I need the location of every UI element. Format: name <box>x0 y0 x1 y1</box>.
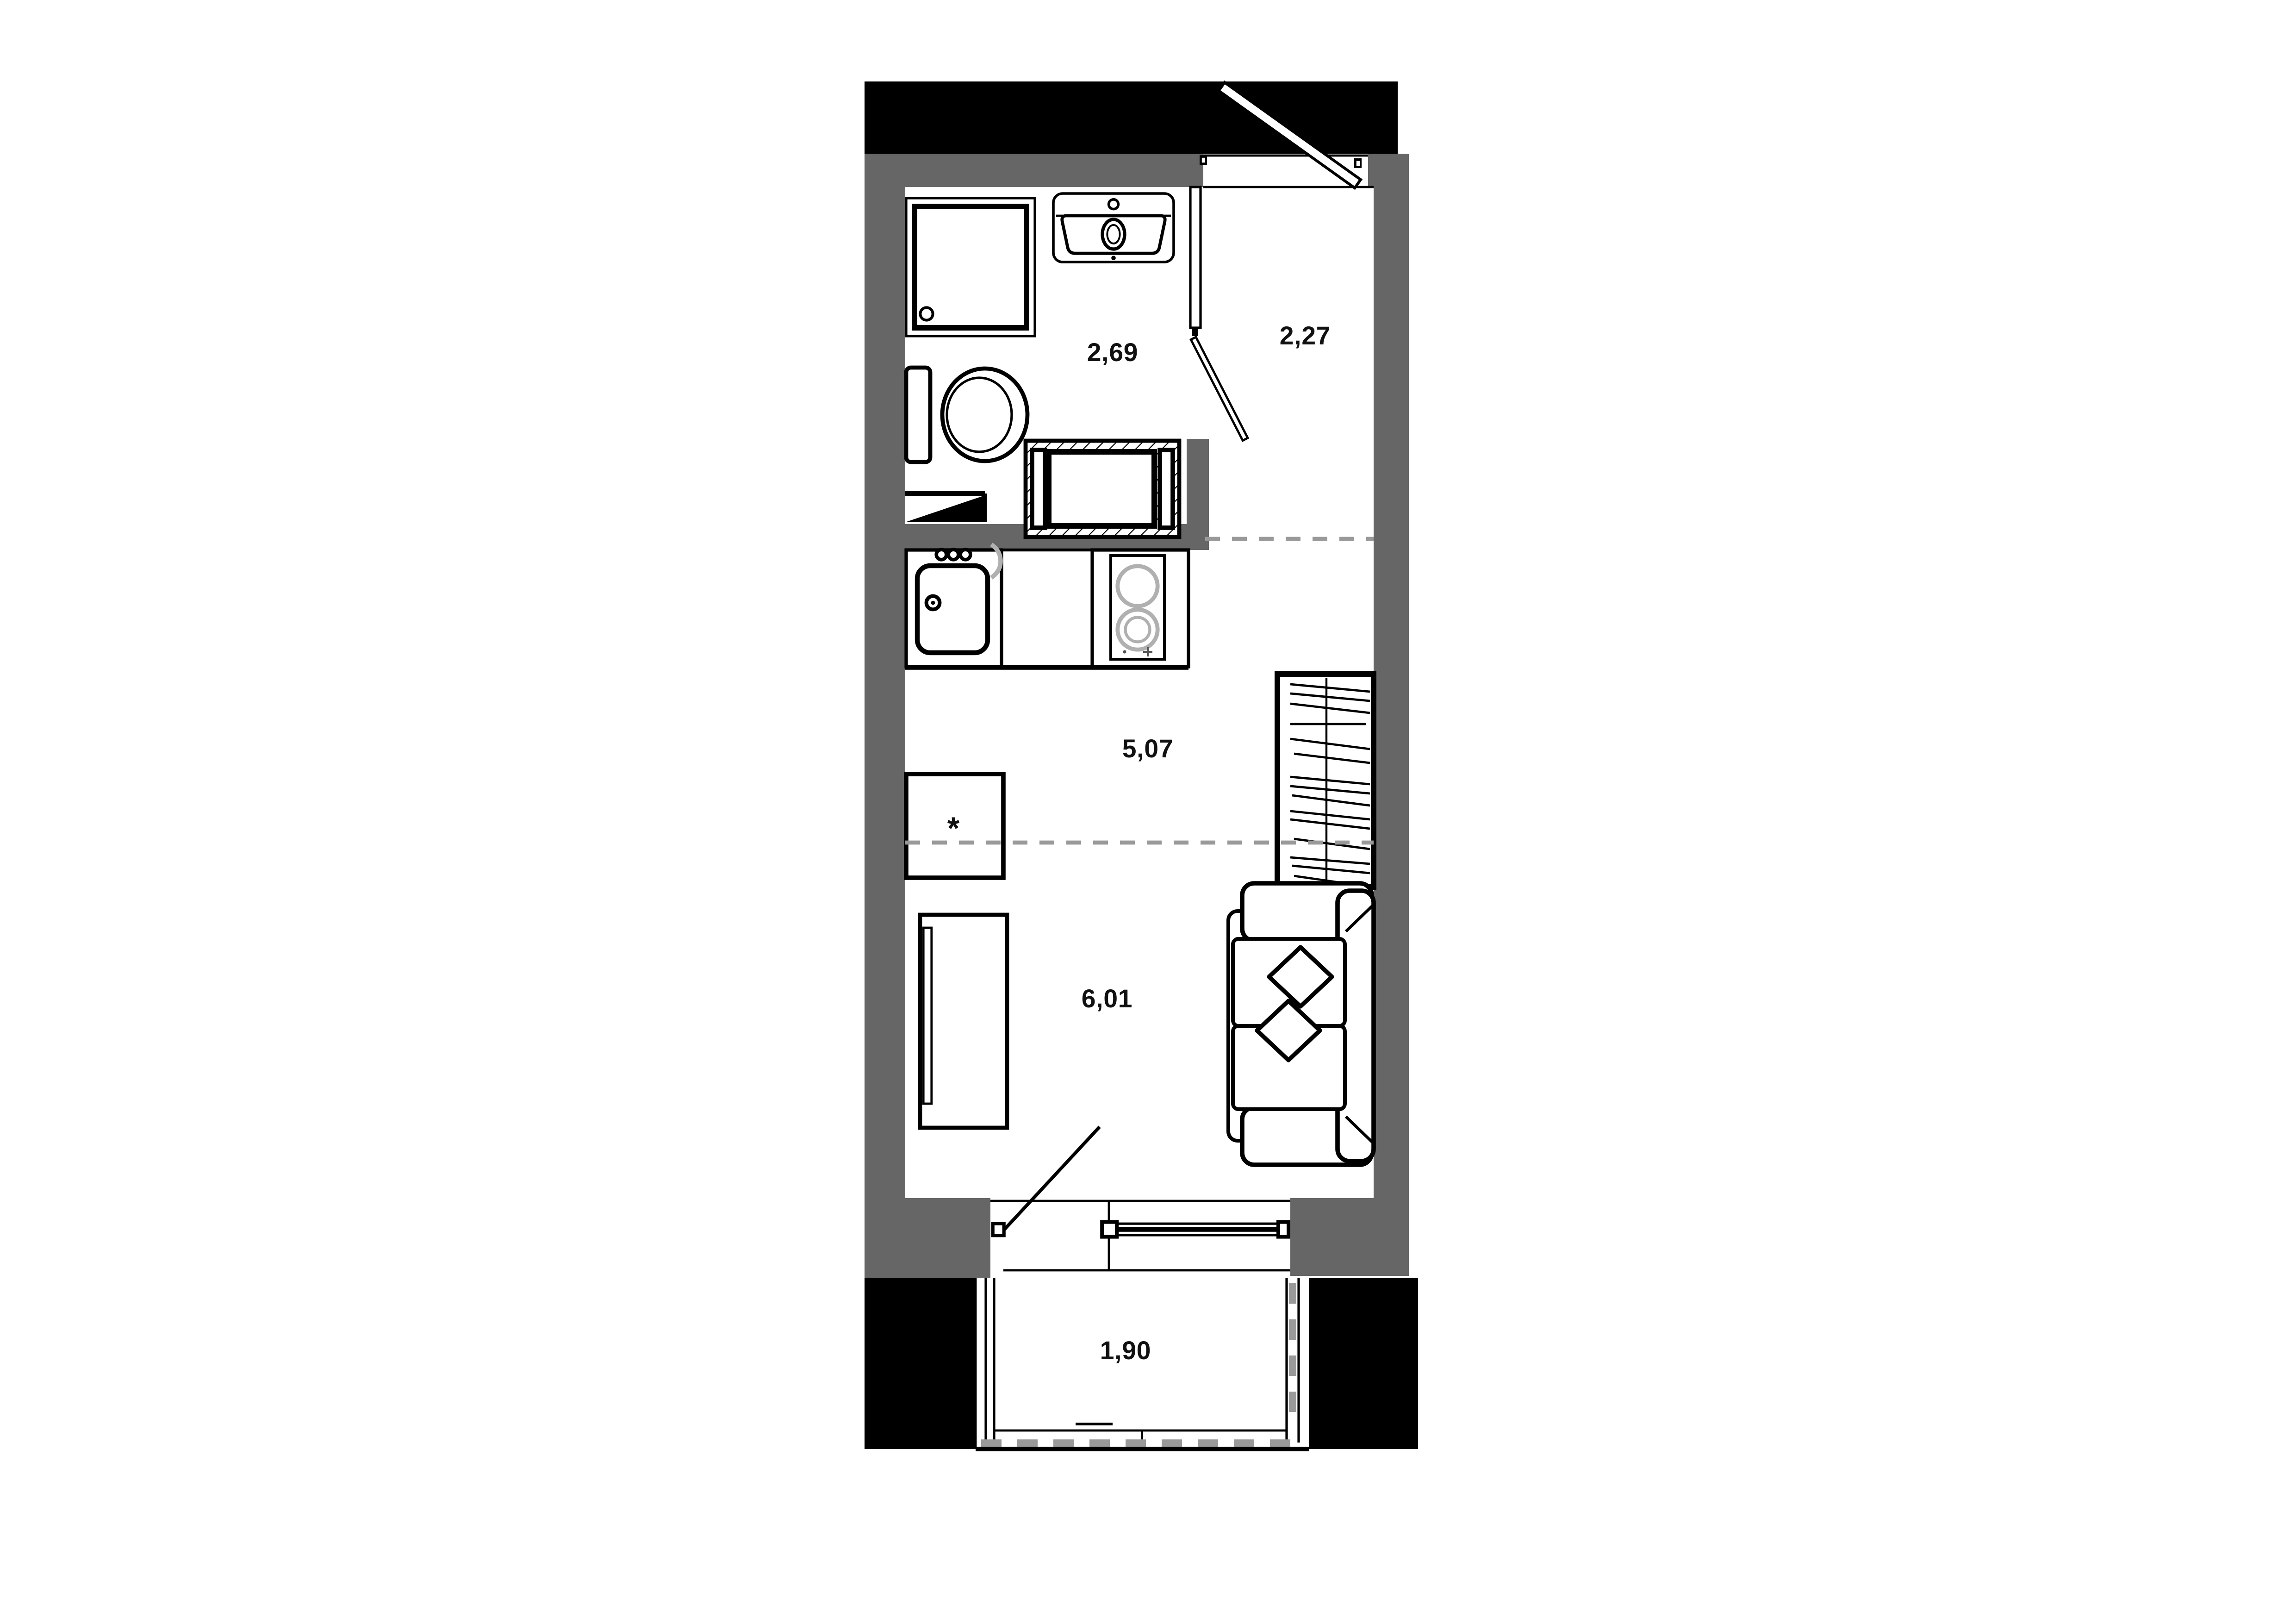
shower-cabin <box>906 198 1035 336</box>
washing-machine <box>1026 441 1179 537</box>
label-balcony-area: 1,90 <box>1100 1336 1151 1365</box>
desk-top <box>920 915 1007 1128</box>
kitchen-sink-drain-dot <box>931 601 935 605</box>
washing-machine-body <box>1049 452 1154 526</box>
balcony-door-stop <box>993 1224 1004 1236</box>
stove-burner-bottom <box>1118 610 1157 650</box>
table-note-symbol: * <box>947 811 960 846</box>
window-post-right <box>1278 1222 1288 1237</box>
shower-drain <box>920 307 933 320</box>
wall-right <box>1374 187 1409 1198</box>
asterisk-table: * <box>906 774 1003 878</box>
wall-top-left-segment <box>865 154 1203 187</box>
stove-burner-top <box>1118 566 1157 606</box>
washing-machine-left-slat <box>1032 450 1045 528</box>
kitchen-counter <box>1002 550 1092 667</box>
floor-plan-svg: * <box>0 0 2296 1624</box>
faucet-knob-3 <box>960 550 971 560</box>
balcony-door-leaf <box>1004 1127 1100 1230</box>
shower-outer <box>906 198 1035 336</box>
window <box>1102 1222 1288 1237</box>
exterior-mass-bottom-left <box>865 1278 976 1449</box>
wall-niche-stub <box>1187 439 1209 550</box>
shelf-solid-wedge <box>905 495 985 522</box>
bathroom-door-leaf <box>1191 337 1248 441</box>
entry-door-stop-left-notch <box>1202 158 1205 162</box>
wall-bottom-right-block <box>1290 1198 1409 1276</box>
wall-left <box>865 187 905 1198</box>
toilet-tank <box>906 368 930 462</box>
sofa-with-pillows <box>1228 883 1374 1165</box>
wash-basin <box>1053 194 1174 262</box>
exterior-mass-top <box>865 81 1398 154</box>
washing-machine-right-slat <box>1160 450 1173 528</box>
faucet-knob-1 <box>936 550 946 560</box>
bathroom-door-stop <box>1192 329 1198 336</box>
wall-bottom-left-block <box>865 1198 990 1278</box>
kitchen-row <box>905 544 1188 668</box>
entry-door-stop-right-notch <box>1356 161 1360 166</box>
exterior-mass-bottom-right <box>1309 1278 1418 1449</box>
window-post-left <box>1102 1222 1117 1237</box>
label-hallway-area: 2,27 <box>1280 321 1331 350</box>
basin-overflow-dot <box>1111 256 1116 260</box>
label-kitchen-area: 5,07 <box>1122 734 1174 763</box>
corner-shelf <box>905 493 985 522</box>
floor-plan-canvas: * <box>0 0 2296 1624</box>
toilet-bowl <box>942 369 1027 461</box>
label-living-area: 6,01 <box>1082 984 1133 1013</box>
label-bathroom-area: 2,69 <box>1087 338 1139 367</box>
stove-burner-bottom-inner <box>1126 618 1150 642</box>
faucet-knob-2 <box>948 550 958 560</box>
toilet <box>906 368 1027 462</box>
stove-control-dot <box>1123 650 1126 653</box>
wardrobe-with-clothes <box>1277 674 1374 896</box>
bathroom-partition-and-door <box>1190 187 1248 441</box>
desk <box>920 915 1007 1128</box>
wall-top-right-segment <box>1368 154 1409 187</box>
bathroom-partition-wall <box>1190 187 1201 328</box>
